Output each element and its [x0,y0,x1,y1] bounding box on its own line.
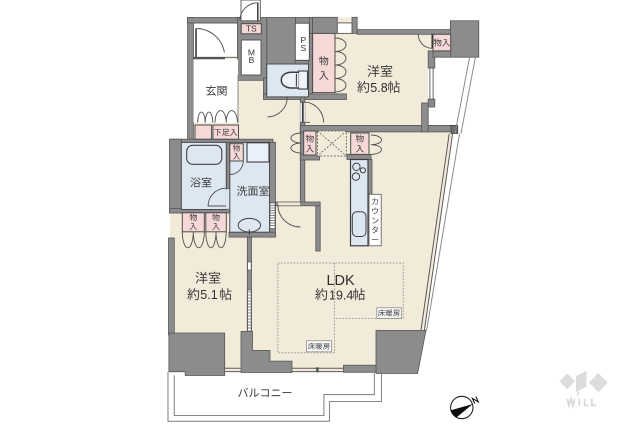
svg-text:S: S [300,43,306,53]
svg-text:LDK: LDK [326,273,355,289]
svg-text:TS: TS [246,24,257,34]
svg-text:19.4: 19.4 [329,288,353,302]
svg-text:B: B [249,55,255,65]
svg-text:5.1: 5.1 [200,288,217,302]
svg-text:5.8: 5.8 [370,81,387,95]
